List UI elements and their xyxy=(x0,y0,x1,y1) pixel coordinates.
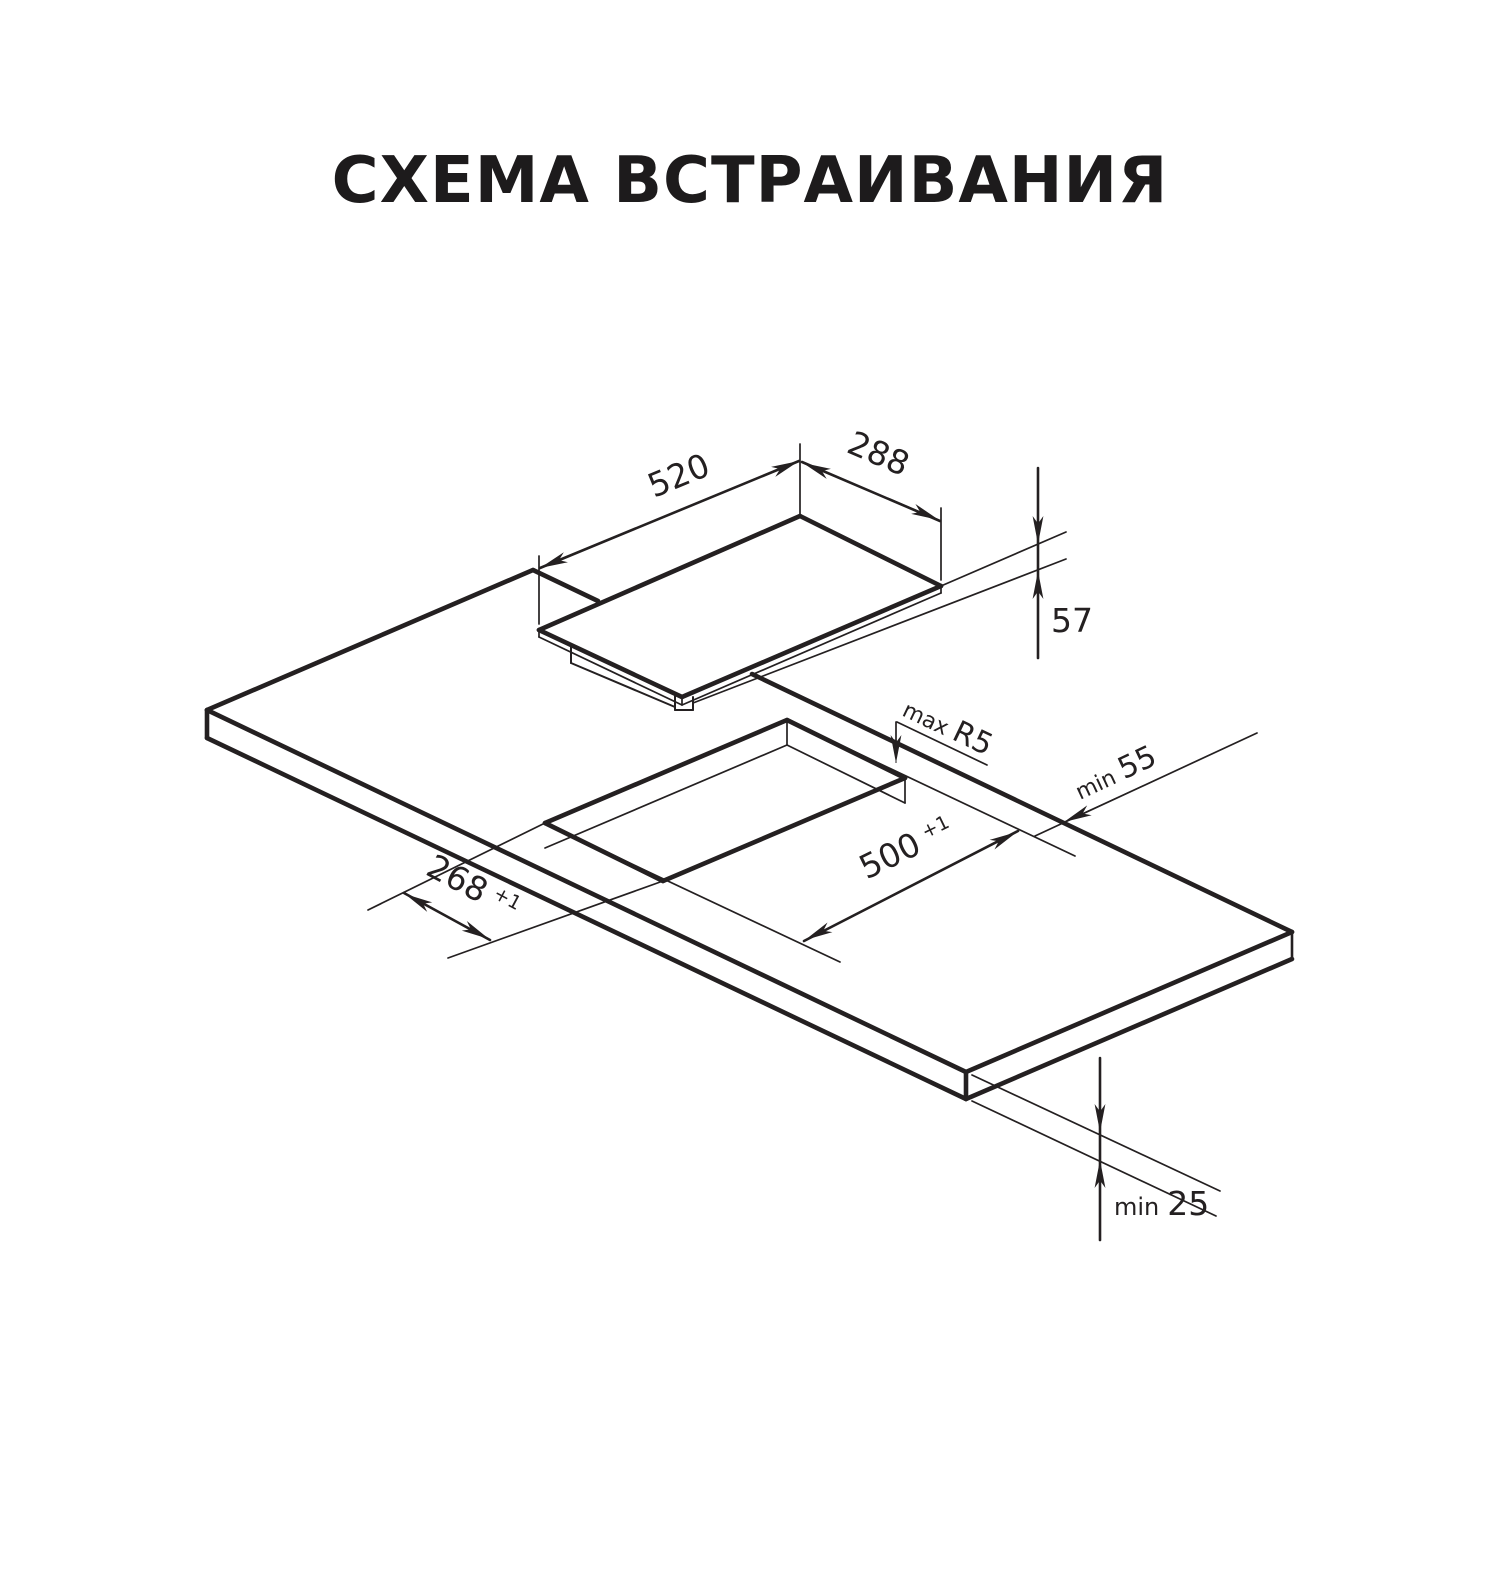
installation-scheme-page: СХЕМА ВСТРАИВАНИЯ xyxy=(0,0,1500,1586)
cutout-width-label: 500+1 xyxy=(853,808,959,886)
dim-hob-height-57: 57 xyxy=(1038,468,1093,658)
hob-height-label: 57 xyxy=(1051,601,1093,640)
dim-cutout-depth-268: 268+1 xyxy=(368,823,663,958)
embedding-diagram: 520 288 57 maxR5 min55 xyxy=(0,0,1500,1586)
cooktop xyxy=(539,516,1066,710)
dim-cutout-corner-radius: maxR5 xyxy=(896,691,998,765)
hob-width-label: 520 xyxy=(642,445,715,505)
dim-side-clearance-55: min55 xyxy=(1035,733,1257,836)
worktop-cutout xyxy=(545,720,905,881)
dim-below-clearance-25: min25 xyxy=(972,1058,1220,1240)
hob-depth-label: 288 xyxy=(842,423,915,484)
side-clearance-label: min55 xyxy=(1069,739,1162,807)
